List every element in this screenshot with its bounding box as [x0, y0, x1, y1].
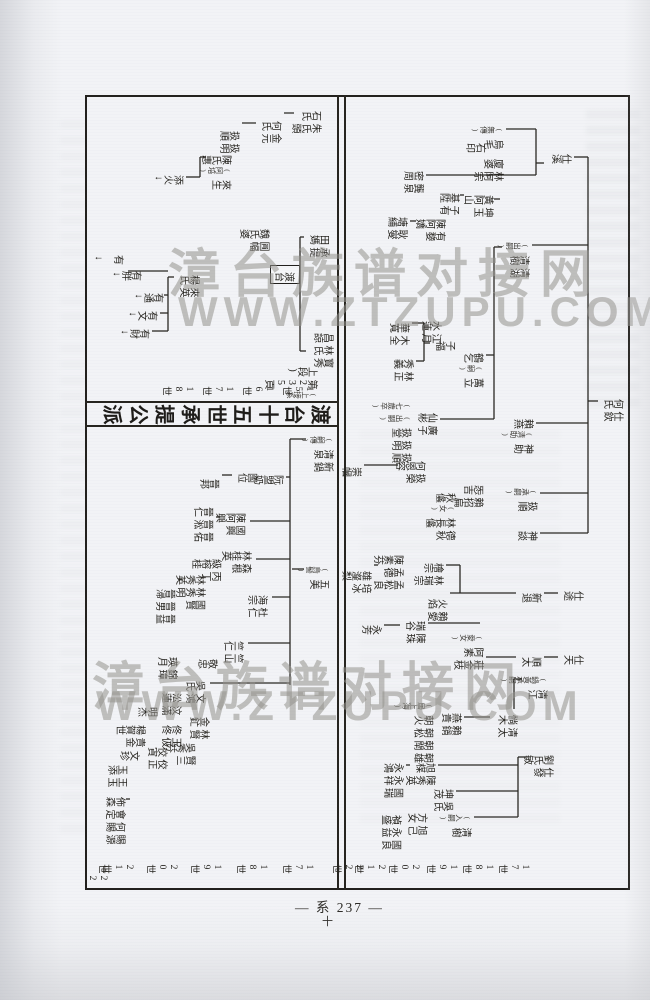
section-divider: [337, 95, 339, 890]
generation-label: 16世: [242, 383, 275, 394]
person-node: 晉佑晉淞晉仁: [194, 503, 214, 541]
person-node: 朝雄朝閛朝松朝火(居上海): [394, 699, 435, 762]
person-node: 賜源何賜會定佈森: [106, 793, 126, 843]
person-node: 龔泉密周: [404, 167, 424, 192]
person-node: 文鴻吳氏: [186, 677, 206, 702]
crossed-to-taiwan-box: 渡台: [270, 265, 300, 284]
scanned-genealogy-page: 漳台族谱对接网 WWW.ZTZUPU.COM 漳台族谱对接网 WWW.ZTZUP…: [0, 0, 650, 1000]
person-node: 有文↓: [127, 307, 158, 320]
person-node: 有財↓: [119, 325, 150, 338]
person-node: 新鍋清泉(嗣傳): [301, 433, 334, 471]
person-node: 王玉玉添: [108, 761, 128, 786]
person-node: 清樹(入嗣): [439, 811, 472, 836]
person-node: 國瑞永祥永鴻: [384, 759, 404, 797]
generation-label: 17世: [202, 383, 235, 394]
person-node: 文珍: [120, 747, 140, 760]
person-node: 木全華寬: [390, 319, 410, 344]
person-node: 萬立(嗣)鶴乞: [459, 349, 485, 387]
person-node: 仕溪: [552, 150, 572, 163]
person-node: 孟松良孟德陳素芬: [374, 551, 404, 589]
person-node: 朱氏頭石氏: [292, 107, 322, 132]
person-node: 明杰: [138, 703, 158, 716]
chapter-mark: 十: [322, 913, 333, 929]
person-node: 敬忠: [198, 655, 218, 668]
branch-title: 渡台十五世承提公派: [97, 398, 331, 427]
person-node: 來英楊氏: [180, 271, 200, 296]
generation-label: 19世: [426, 861, 459, 872]
bleed-through-texture: [60, 120, 86, 840]
person-node: 扱明扱順: [220, 127, 240, 152]
person-node: 寳秀林氏昌諒: [314, 329, 334, 367]
person-node: 阮盟奶: [254, 471, 284, 484]
person-node: 杜仁海宗: [248, 591, 268, 616]
person-node: 有通↓: [133, 289, 164, 302]
generation-label: 22世: [332, 861, 365, 872]
generation-label: 20世: [146, 861, 179, 872]
person-node: 順太: [522, 653, 542, 666]
person-node: 㘣幅魏氏婆: [240, 225, 270, 250]
person-node: 金元何氏: [262, 117, 282, 142]
person-node: 仕途: [564, 587, 584, 600]
person-node: 有㜈陳阿嬌: [416, 215, 446, 240]
page-number: — 系 237 —: [295, 896, 384, 916]
person-node: 神談: [518, 527, 538, 540]
person-node: 五美(烏髻): [297, 563, 330, 588]
person-node: 江月水蓮: [422, 317, 442, 342]
person-node: 來生(阿培)陳氏惠: [199, 151, 232, 189]
person-node: 陳秀英旭楳: [406, 759, 436, 784]
person-node: 扱榮何恩容: [396, 457, 426, 482]
person-node: 添火↓: [153, 171, 184, 184]
person-node: 陳珠瑞谷: [406, 617, 426, 642]
person-node: 扱順(承嗣): [505, 485, 538, 510]
generation-label: 18世: [462, 861, 495, 872]
generation-label: 18世: [162, 383, 195, 394]
person-node: 林賢金釯: [190, 713, 210, 738]
person-node: 錦璋瑛月: [158, 653, 178, 678]
person-node: 神助(清助)賴燕: [501, 415, 534, 453]
person-node: 培冰雄瀣梨: [342, 567, 372, 592]
generation-label: 19世: [190, 861, 223, 872]
genealogy-chart: 渡台十五世承提公派 仕欽何氏仕溪烏毛(無傳)石印林阿宗廈婆龔泉密周坤玉黃阿山子有…: [85, 95, 630, 890]
person-node: 汶滿㳂蓮: [162, 689, 182, 714]
person-node: (上接系第235頁上段): [265, 363, 318, 401]
person-node: 石印: [466, 139, 486, 152]
generation-label: 20世: [388, 861, 421, 872]
person-node: 清湖清樹(出嗣): [497, 239, 530, 277]
person-node: 清江(鍋黃承嗣): [500, 673, 548, 698]
person-node: 晉益晉男晉㴆: [156, 585, 176, 623]
section-divider: [344, 95, 346, 890]
person-node: 森根林桂英: [222, 547, 252, 572]
person-node: 永芳: [362, 621, 382, 634]
person-node: 扱順扱明扱堂(出嗣)(七歲卒): [372, 399, 413, 462]
person-node: 廣子仙彬: [418, 409, 438, 434]
person-node: 有𡘨↓: [93, 251, 124, 264]
person-node: 崇幗: [342, 463, 362, 476]
person-node: 林瑞宗檜宗: [414, 559, 444, 584]
person-node: 子有基陞: [440, 189, 460, 214]
person-node: 仕天: [564, 651, 584, 664]
person-node: 賴愛火焰: [428, 595, 448, 620]
generation-label: 18世: [236, 861, 269, 872]
person-node: 耿燮塘䋠: [388, 213, 408, 238]
generation-label: 22世: [85, 861, 108, 883]
person-node: 德秋林長㒩(女)秋㒩: [426, 489, 456, 539]
generation-label: 17世: [498, 861, 531, 872]
person-node: 仕欽何氏: [604, 395, 624, 420]
person-node: 新退: [522, 589, 542, 602]
person-node: 國位: [238, 469, 258, 482]
person-node: 竺山竺仁: [224, 637, 244, 662]
person-node: 林正秀義: [394, 355, 414, 380]
person-node: 貴金楊賀世: [116, 721, 146, 746]
person-node: 仕發劉氏敏: [524, 751, 554, 776]
person-node: 旭己方女: [408, 809, 428, 834]
person-node: 國良永益禎盛: [382, 811, 402, 849]
person-node: 吳氏坤茂: [434, 785, 454, 810]
person-node: 佼正佼寊: [148, 743, 168, 768]
person-node: 坤玉黃阿山: [464, 191, 494, 216]
person-node: 林阿宗廈婆: [474, 155, 504, 180]
person-node: 承提田媽: [310, 231, 330, 256]
person-node: 國興陳阿興: [216, 509, 246, 534]
person-node: 晉邦: [200, 475, 220, 488]
person-node: 國賢林秀明林秀英: [176, 571, 206, 609]
person-node: 清太惝木: [498, 711, 518, 736]
generation-label: 15世: [282, 383, 315, 394]
person-node: 有胖↓: [111, 267, 142, 280]
person-node: 莊金枝阿素(愛女): [451, 631, 484, 669]
person-node: 賴鍋燕貴: [442, 709, 462, 734]
person-node: 賢三吳秀芬: [166, 739, 196, 764]
generation-label: 17世: [282, 861, 315, 872]
person-node: 賴招扁㤅吉: [454, 481, 484, 506]
